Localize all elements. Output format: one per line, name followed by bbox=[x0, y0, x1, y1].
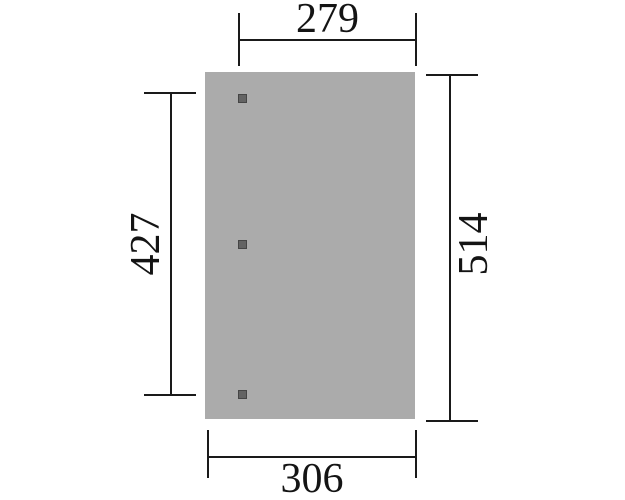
dimension-diagram: 279 306 427 514 bbox=[0, 0, 625, 500]
post-marker-top bbox=[238, 94, 247, 103]
dim-right-tick-top bbox=[426, 74, 478, 76]
dim-left-tick-top bbox=[144, 92, 196, 94]
dim-left-line bbox=[170, 93, 172, 396]
post-marker-middle bbox=[238, 240, 247, 249]
slab-rect bbox=[205, 72, 415, 419]
dim-top-label: 279 bbox=[238, 0, 417, 41]
post-marker-bottom bbox=[238, 390, 247, 399]
dim-bottom-label: 306 bbox=[207, 457, 417, 500]
dim-right-label: 514 bbox=[452, 179, 496, 309]
dim-right-tick-bottom bbox=[426, 420, 478, 422]
dim-left-label: 427 bbox=[124, 179, 168, 309]
dim-left-tick-bottom bbox=[144, 394, 196, 396]
